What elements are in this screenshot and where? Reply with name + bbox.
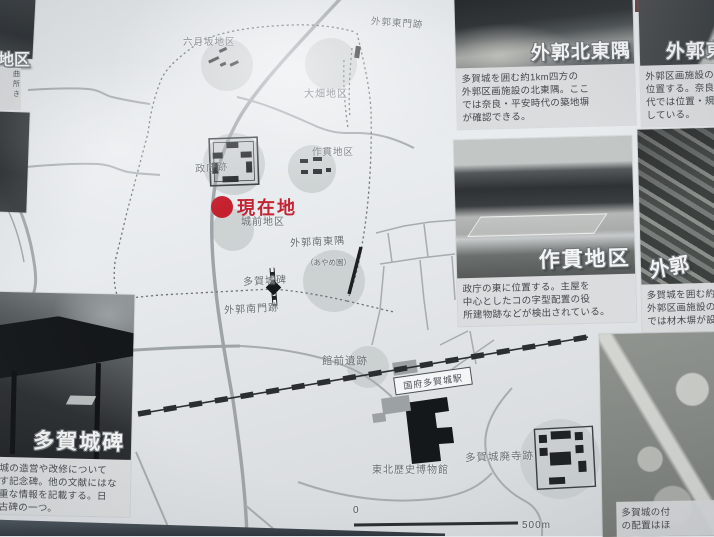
tagajo-monument-caption: 城の造営や改修について す記念碑。他の文献にはな 重な情報を記載する。日 古碑の… xyxy=(0,456,131,517)
timber-wall-photo: 外郭 xyxy=(637,126,714,284)
display-stand xyxy=(66,396,96,405)
frag-cap-line: き xyxy=(1,90,20,100)
east-panel-caption: 外郭区画施設の東 位置する。奈良時 代では位置・規模 している。 xyxy=(640,62,714,126)
left-fragment-photo-middle xyxy=(0,111,30,212)
panel-tagajo-monument: 多賀城碑 城の造営や改修について す記念碑。他の文献にはな 重な情報を記載する。… xyxy=(0,291,134,517)
sakkan-caption: 政庁の東に位置する。主屋を 中心としたコの字型配置の役 所建物跡などが検出されて… xyxy=(457,274,636,327)
frag-cap-line: 曲 xyxy=(1,70,20,80)
east-panel-photo: 外郭東 xyxy=(638,0,714,66)
map-label-rokugatsuzaka-district: 六月坂地区 xyxy=(183,34,236,48)
east-panel-title: 外郭東 xyxy=(665,35,714,64)
panel-gaikaku-timber-wall: 外郭 多賀城を囲む約 外郭区画施設の では材木塀が設置 xyxy=(637,126,714,332)
northeast-corner-title: 外郭北東隅 xyxy=(530,36,631,66)
map-label-ayame-garden: （あやめ園） xyxy=(306,257,351,268)
scale-bar xyxy=(354,523,518,525)
panel-aerial-photo: 多賀城の付 の配置はほ xyxy=(599,332,714,537)
map-label-tagajo-monument: 多賀城碑 xyxy=(243,271,288,288)
northeast-corner-caption: 多賀城を囲む約1km四方の 外郭区画施設の北東隅。ここ では奈良・平安時代の築地… xyxy=(456,64,636,130)
timber-wall-caption: 多賀城を囲む約 外郭区画施設の では材木塀が設置 xyxy=(641,281,714,332)
frag-cap-line: 所 xyxy=(1,80,20,90)
left-fragment-caption: 曲 所 き xyxy=(0,68,21,110)
map-label-seicho-site: 政庁跡 xyxy=(195,158,229,175)
panel-gaikaku-east: 外郭東 外郭区画施設の東 位置する。奈良時 代では位置・規模 している。 xyxy=(638,0,714,127)
map-label-south-gate-site: 外郭南門跡 xyxy=(224,299,280,317)
excavation-outline xyxy=(467,214,607,238)
sakkan-photo: 作貫地区 xyxy=(454,136,636,279)
scale-zero-label: 0 xyxy=(353,505,360,516)
map-label-museum: 東北歴史博物館 xyxy=(372,461,449,476)
caption-line: 代では位置・規模 xyxy=(646,93,714,109)
panel-gaikaku-northeast-corner: 外郭北東隅 多賀城を囲む約1km四方の 外郭区画施設の北東隅。ここ では奈良・平… xyxy=(454,0,635,129)
panel-sakkan-district: 作貫地区 政庁の東に位置する。主屋を 中心としたコの字型配置の役 所建物跡などが… xyxy=(454,136,637,327)
sakkan-title: 作貫地区 xyxy=(538,242,631,274)
map-label-obata-district: 大畑地区 xyxy=(304,85,348,100)
shelter-post xyxy=(10,371,17,454)
map-label-haiji-temple-site: 多賀城廃寺跡 xyxy=(465,448,534,465)
current-location-dot xyxy=(211,196,233,218)
map-label-tatemae-site: 館前遺跡 xyxy=(322,353,368,368)
current-location-label: 現在地 xyxy=(237,194,297,220)
scale-end-label: 500m xyxy=(522,520,551,531)
map-label-southeast-corner: 外郭南東隅 xyxy=(290,232,346,250)
aerial-caption: 多賀城の付 の配置はほ xyxy=(616,500,714,537)
timber-wall-title: 外郭 xyxy=(647,248,692,284)
tagajo-monument-photo: 多賀城碑 xyxy=(0,291,134,460)
museum-building-icon xyxy=(405,397,454,464)
east-gate-marker xyxy=(354,46,361,59)
circle-obata xyxy=(305,38,357,90)
map-label-sakkan-district: 作貫地区 xyxy=(312,144,354,158)
caption-line: の配置はほ xyxy=(621,518,714,533)
tagajo-monument-title: 多賀城碑 xyxy=(33,425,126,457)
caption-line: している。 xyxy=(646,106,714,122)
caption-line: では材木塀が設置 xyxy=(647,312,714,328)
left-fragment-title: 地区 xyxy=(0,46,30,70)
shelter-roof xyxy=(0,314,134,387)
information-sign-board: 六月坂地区 大畑地区 外郭東門跡 政庁跡 作貫地区 城前地区 外郭南東隅 （あや… xyxy=(0,0,714,536)
northeast-corner-photo: 外郭北東隅 xyxy=(454,0,634,68)
